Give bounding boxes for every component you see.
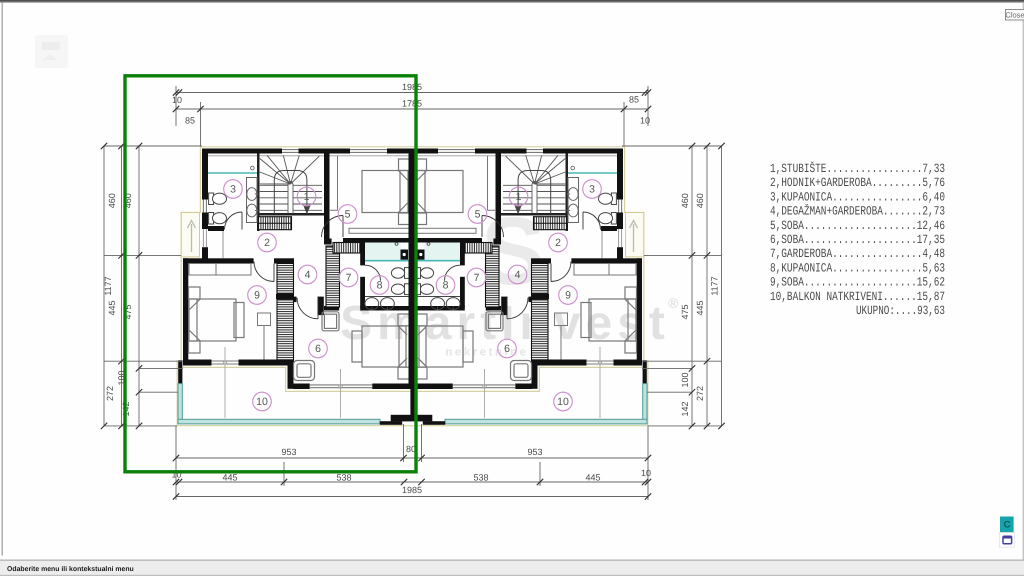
svg-text:272: 272 xyxy=(105,386,115,401)
svg-text:4: 4 xyxy=(305,269,311,281)
svg-text:7,GARDEROBA................4,4: 7,GARDEROBA................4,48 xyxy=(770,247,945,261)
svg-text:6: 6 xyxy=(504,343,510,355)
svg-text:1: 1 xyxy=(516,191,522,203)
svg-text:1,STUBIŠTE.................7,3: 1,STUBIŠTE.................7,33 xyxy=(770,161,945,176)
svg-text:9: 9 xyxy=(565,290,571,302)
svg-text:2: 2 xyxy=(555,237,561,249)
svg-text:2,HODNIK+GARDEROBA.........5,7: 2,HODNIK+GARDEROBA.........5,76 xyxy=(770,176,945,190)
svg-text:142: 142 xyxy=(680,401,690,416)
svg-text:953: 953 xyxy=(281,447,296,457)
svg-text:5,SOBA....................12,4: 5,SOBA....................12,46 xyxy=(770,219,945,233)
svg-text:1985: 1985 xyxy=(402,82,422,92)
svg-text:9,SOBA....................15,6: 9,SOBA....................15,62 xyxy=(770,276,945,290)
svg-text:10: 10 xyxy=(256,396,268,408)
svg-text:10,BALKON NATKRIVENI......15,8: 10,BALKON NATKRIVENI......15,87 xyxy=(770,290,945,304)
svg-text:7: 7 xyxy=(346,272,352,284)
svg-text:5: 5 xyxy=(475,209,481,221)
svg-text:6,SOBA....................17,3: 6,SOBA....................17,35 xyxy=(770,233,945,247)
svg-text:445: 445 xyxy=(107,300,117,315)
svg-text:10: 10 xyxy=(641,468,651,478)
svg-text:Close: Close xyxy=(1005,10,1024,19)
svg-text:5: 5 xyxy=(345,209,351,221)
svg-text:460: 460 xyxy=(680,193,690,208)
svg-text:1785: 1785 xyxy=(402,99,422,109)
svg-text:4,DEGAŽMAN+GARDEROBA.......2,7: 4,DEGAŽMAN+GARDEROBA.......2,73 xyxy=(770,204,945,219)
svg-text:272: 272 xyxy=(695,386,705,401)
svg-text:9: 9 xyxy=(254,290,260,302)
svg-text:C: C xyxy=(1004,520,1011,531)
svg-text:10: 10 xyxy=(172,95,182,105)
svg-text:3: 3 xyxy=(230,184,236,196)
svg-text:538: 538 xyxy=(473,473,488,483)
svg-text:85: 85 xyxy=(185,116,195,126)
svg-text:85: 85 xyxy=(629,95,639,105)
svg-text:460: 460 xyxy=(695,193,705,208)
svg-text:2: 2 xyxy=(264,237,270,249)
svg-text:953: 953 xyxy=(527,447,542,457)
svg-text:10: 10 xyxy=(557,396,569,408)
svg-text:UKUPNO:....93,63: UKUPNO:....93,63 xyxy=(856,304,945,318)
svg-text:8,KUPAONICA................5,6: 8,KUPAONICA................5,63 xyxy=(770,261,945,275)
svg-text:475: 475 xyxy=(680,304,690,319)
svg-text:Odaberite menu ili kontekstual: Odaberite menu ili kontekstualni menu xyxy=(7,566,134,573)
svg-text:7: 7 xyxy=(474,272,480,284)
svg-text:1177: 1177 xyxy=(103,276,113,295)
svg-text:8: 8 xyxy=(443,280,449,292)
svg-text:538: 538 xyxy=(336,473,351,483)
svg-text:445: 445 xyxy=(222,473,237,483)
svg-text:460: 460 xyxy=(107,193,117,208)
svg-text:4: 4 xyxy=(515,269,521,281)
svg-text:1: 1 xyxy=(304,191,310,203)
svg-text:3,KUPAONICA................6,4: 3,KUPAONICA................6,40 xyxy=(770,190,945,204)
svg-text:1985: 1985 xyxy=(402,485,422,495)
svg-text:3: 3 xyxy=(589,184,595,196)
svg-text:10: 10 xyxy=(640,116,650,126)
svg-text:®: ® xyxy=(668,295,679,311)
svg-text:445: 445 xyxy=(695,300,705,315)
svg-text:445: 445 xyxy=(585,473,600,483)
svg-text:6: 6 xyxy=(315,343,321,355)
svg-text:100: 100 xyxy=(680,372,690,387)
svg-text:8: 8 xyxy=(377,280,383,292)
svg-text:1177: 1177 xyxy=(710,276,720,295)
